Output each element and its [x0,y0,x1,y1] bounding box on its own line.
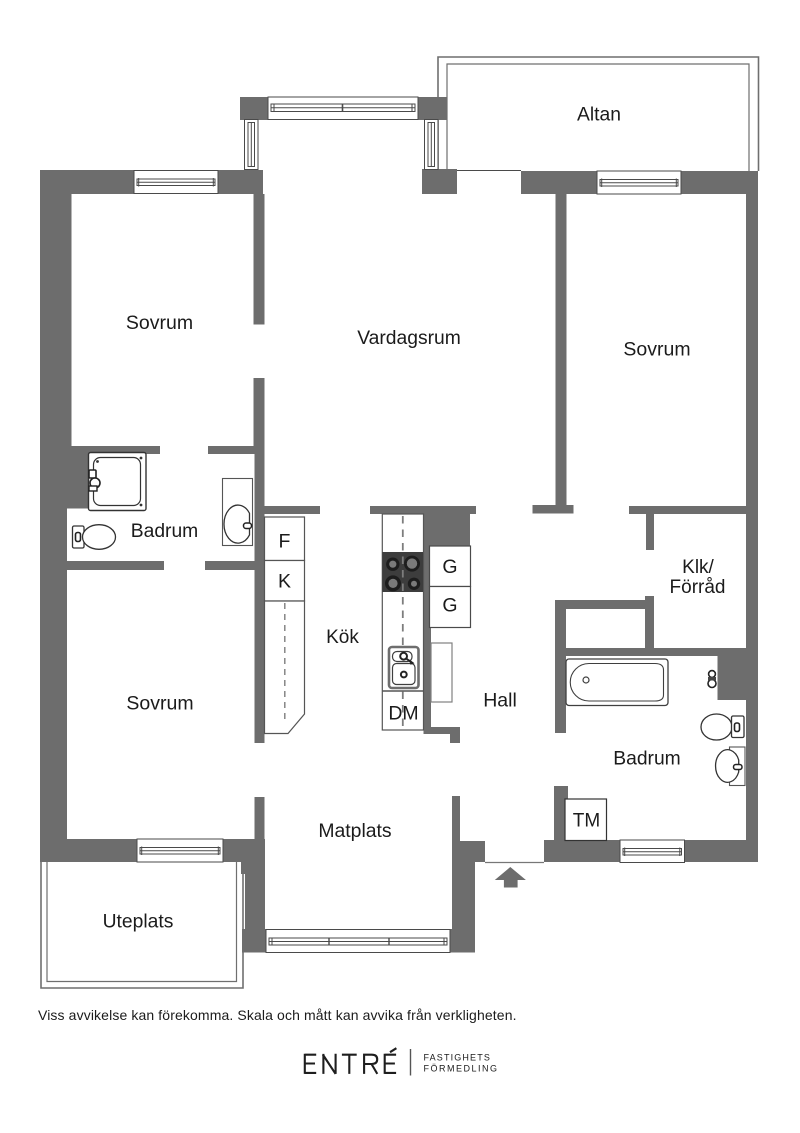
svg-text:DM: DM [388,703,418,725]
svg-text:Altan: Altan [577,105,621,126]
svg-text:Badrum: Badrum [131,521,199,542]
svg-text:Sovrum: Sovrum [126,312,193,334]
svg-text:FASTIGHETS: FASTIGHETS [424,1053,492,1063]
svg-text:K: K [278,571,291,593]
svg-text:F: F [279,531,291,553]
svg-text:Förråd: Förråd [670,577,726,598]
svg-text:FÖRMEDLING: FÖRMEDLING [424,1064,499,1074]
svg-text:Hall: Hall [483,690,517,712]
svg-text:Viss avvikelse kan förekomma.: Viss avvikelse kan förekomma. Skala och … [38,1007,517,1023]
svg-text:Badrum: Badrum [613,749,681,770]
svg-text:Klk/: Klk/ [682,557,714,578]
svg-text:G: G [442,556,457,578]
svg-text:Sovrum: Sovrum [623,339,690,361]
svg-text:TM: TM [573,811,600,832]
svg-text:Kök: Kök [326,627,359,648]
svg-text:Uteplats: Uteplats [103,912,174,933]
svg-text:Sovrum: Sovrum [126,693,193,715]
svg-text:Matplats: Matplats [318,820,391,842]
svg-text:G: G [442,595,457,617]
svg-text:Vardagsrum: Vardagsrum [357,328,461,349]
